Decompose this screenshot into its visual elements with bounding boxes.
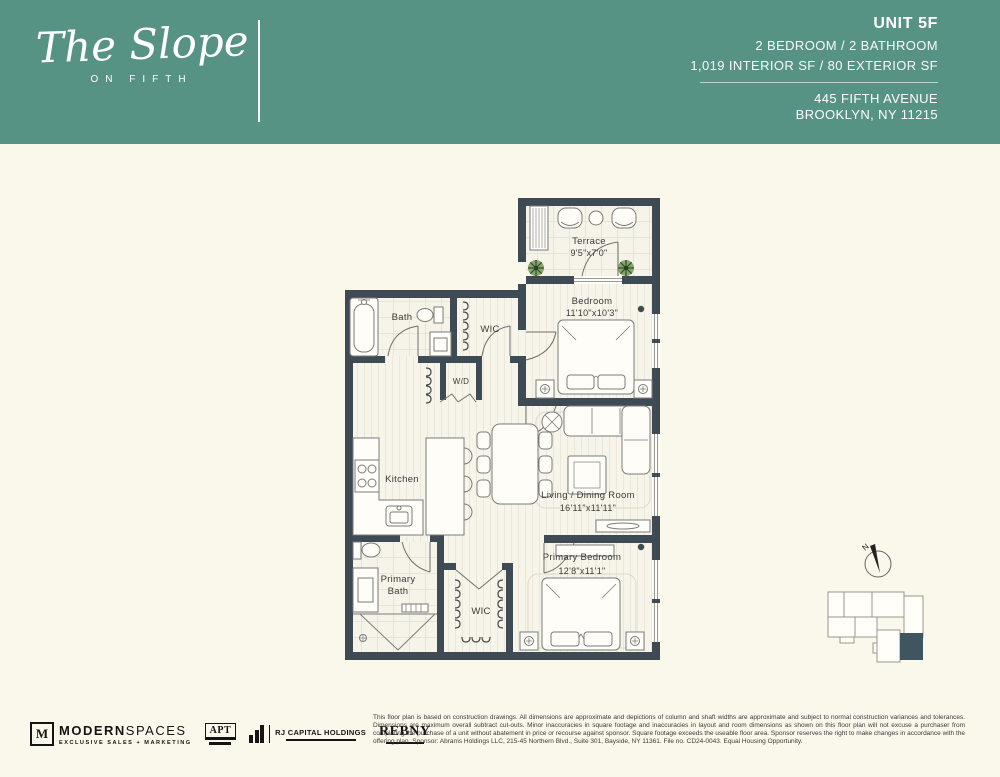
unit-label: UNIT 5F <box>690 15 938 33</box>
primary-bedroom-label: Primary Bedroom <box>543 552 621 563</box>
bath-label: Bath <box>392 312 413 323</box>
rosette-icon <box>638 544 644 550</box>
address-line-2: BROOKLYN, NY 11215 <box>690 107 938 123</box>
bedroom-dims: 11'10"x10'3" <box>566 308 618 318</box>
nightstand-icon <box>536 380 554 398</box>
nightstand-icon <box>626 632 644 650</box>
compass-icon: N <box>861 542 891 577</box>
living-label: Living / Dining Room <box>541 490 635 501</box>
primary-bedroom-dims: 12'8"x11'1" <box>559 566 606 576</box>
modernspaces-logo: M MODERNSPACES EXCLUSIVE SALES + MARKETI… <box>30 722 192 746</box>
apt-logo-text: APT <box>205 723 237 740</box>
brand-logo-subtitle: ON FIFTH <box>36 74 240 85</box>
wic-lower-label: WIC <box>471 606 490 617</box>
header-rule <box>700 82 938 83</box>
nightstand-icon <box>634 380 652 398</box>
unit-info: UNIT 5F 2 BEDROOM / 2 BATHROOM 1,019 INT… <box>690 15 938 123</box>
rj-capital-logo: RJ CAPITAL HOLDINGS <box>249 725 366 743</box>
plant-icon <box>528 260 544 276</box>
rj-logo-subtext-bar <box>286 739 356 741</box>
primary-bath-label-1: Primary <box>381 574 416 585</box>
header-vertical-divider <box>258 20 260 122</box>
header-band: The Slope ON FIFTH UNIT 5F 2 BEDROOM / 2… <box>0 0 1000 144</box>
modernspaces-name: MODERNSPACES <box>59 723 192 738</box>
apt-logo: APT <box>205 723 237 745</box>
modernspaces-name-bold: MODERN <box>59 723 126 738</box>
building-icon <box>249 725 264 743</box>
sf-line: 1,019 INTERIOR SF / 80 EXTERIOR SF <box>690 58 938 73</box>
brand-logo: The Slope ON FIFTH <box>36 24 240 85</box>
bedroom-furniture <box>558 320 634 394</box>
wic-upper-label: WIC <box>480 324 499 335</box>
unit-highlight <box>900 633 923 660</box>
building-footprint <box>828 592 923 662</box>
floorplan-drawing: Terrace 9'5"x7'0" Bedroom 11'10"x10'3" B… <box>330 190 670 680</box>
keyplan: N <box>820 540 980 680</box>
modernspaces-name-light: SPACES <box>126 723 187 738</box>
terrace-label: Terrace <box>572 236 606 247</box>
primary-bath-label-2: Bath <box>388 586 409 597</box>
apt-logo-subtext-bar <box>209 742 231 745</box>
address-line-1: 445 FIFTH AVENUE <box>690 91 938 107</box>
terrace-dims: 9'5"x7'0" <box>570 248 607 258</box>
kitchen-label: Kitchen <box>385 474 419 485</box>
modernspaces-tagline: EXCLUSIVE SALES + MARKETING <box>59 740 192 746</box>
bedroom-label: Bedroom <box>572 296 613 307</box>
nightstand-icon <box>520 632 538 650</box>
plant-icon <box>618 260 634 276</box>
rj-logo-divider <box>269 725 270 743</box>
rosette-icon <box>638 306 644 312</box>
living-dims: 16'11"x11'11" <box>560 503 616 513</box>
brand-logo-script: The Slope <box>35 20 240 69</box>
footer-logos: M MODERNSPACES EXCLUSIVE SALES + MARKETI… <box>30 722 431 746</box>
legal-disclaimer: This floor plan is based on construction… <box>373 714 965 746</box>
wd-label: W/D <box>453 377 469 386</box>
rj-capital-name: RJ CAPITAL HOLDINGS <box>275 728 366 737</box>
modernspaces-mark: M <box>30 722 54 746</box>
svg-text:N: N <box>861 542 871 553</box>
bed-bath-line: 2 BEDROOM / 2 BATHROOM <box>690 38 938 53</box>
